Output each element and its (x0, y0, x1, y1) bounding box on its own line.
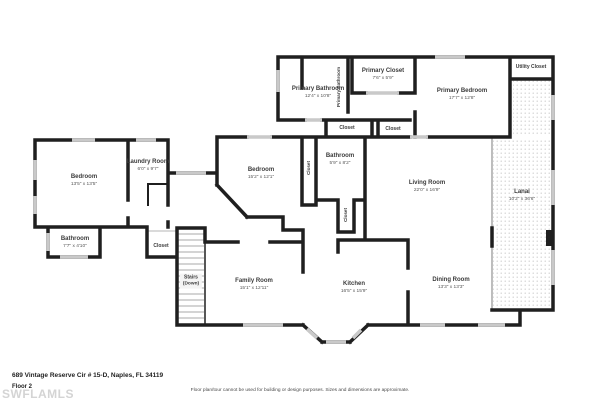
room-label-lanai: Lanai 10'2" x 36'6" (509, 189, 535, 203)
room-label-primary-closet: Primary Closet 7'6" x 5'9" (362, 68, 404, 82)
room-label-family-room: Family Room 15'1" x 12'11" (235, 278, 273, 292)
room-label-laundry-room: Laundry Room 6'0" x 9'7" (127, 159, 169, 173)
room-name: Closet (153, 243, 168, 250)
room-dims: 22'0" x 16'9" (409, 188, 445, 194)
room-label-living-room: Living Room 22'0" x 16'9" (409, 180, 445, 194)
room-name: Primary Bedroom (437, 88, 487, 96)
room-label-dining-room: Dining Room 13'3" x 13'3" (432, 277, 469, 291)
room-name: Closet (339, 125, 354, 132)
room-name: Family Room (235, 278, 273, 286)
room-dims: 7'7" x 4'10" (61, 244, 89, 250)
address-text: 689 Vintage Reserve Cir # 15-D, Naples, … (12, 372, 163, 379)
room-label-bedroom-left: Bedroom 13'5" x 13'5" (71, 174, 97, 188)
room-label-bathroom-left: Bathroom 7'7" x 4'10" (61, 236, 89, 250)
room-dims: 15'2" x 12'1" (248, 175, 274, 181)
room-label-closet-below-bath: Closet (343, 208, 349, 222)
room-label-kitchen: Kitchen 16'5" x 15'9" (341, 281, 367, 295)
room-dims: 7'6" x 5'9" (362, 76, 404, 82)
room-name: Dining Room (432, 277, 469, 285)
room-label-primary-bedroom: Primary Bedroom 17'7" x 12'8" (437, 88, 487, 102)
room-dims: 15'1" x 12'11" (235, 286, 273, 292)
stairs-direction: (Down) (183, 281, 199, 287)
lanai-texture (493, 138, 551, 308)
room-label-closet-stairs: Closet (153, 243, 168, 250)
room-dims: 6'0" x 9'7" (127, 167, 169, 173)
room-dims: 13'3" x 13'3" (432, 285, 469, 291)
room-name: Bedroom (71, 174, 97, 182)
room-name: Bedroom (248, 167, 274, 175)
room-name: Closet (306, 161, 312, 175)
room-dims: 5'9" x 8'2" (326, 161, 354, 167)
room-name: Closet (385, 126, 400, 133)
room-name: Closet (343, 208, 349, 222)
room-name: Lanai (509, 189, 535, 197)
utility-closet-texture (513, 80, 551, 136)
disclaimer-text: Floor plan/tour cannot be used for build… (191, 388, 410, 393)
room-label-utility-closet: Utility Closet (516, 64, 547, 71)
room-label-closet-bedroom: Closet (306, 161, 312, 175)
floor-plan-page: Primary Bathroom 12'4" x 10'8" Primary B… (0, 0, 600, 400)
room-dims: 10'2" x 36'6" (509, 197, 535, 203)
room-name: Bathroom (61, 236, 89, 244)
room-name: Laundry Room (127, 159, 169, 167)
room-name: Primary Bathroom (336, 67, 342, 107)
wall-column (546, 230, 553, 246)
room-name: Kitchen (341, 281, 367, 289)
room-label-stairs: Stairs (Down) (180, 274, 202, 289)
room-name: Stairs (183, 275, 199, 282)
room-name: Living Room (409, 180, 445, 188)
room-label-bedroom-center: Bedroom 15'2" x 12'1" (248, 167, 274, 181)
room-label-primary-bathroom-wc: Primary Bathroom (336, 67, 342, 107)
room-dims: 13'5" x 13'5" (71, 182, 97, 188)
room-label-closet-b: Closet (385, 126, 400, 133)
room-label-bathroom-center: Bathroom 5'9" x 8'2" (326, 153, 354, 167)
room-label-closet-a: Closet (339, 125, 354, 132)
watermark-logo: SWFLAMLS (2, 387, 74, 400)
room-name: Primary Closet (362, 68, 404, 76)
room-name: Bathroom (326, 153, 354, 161)
room-dims: 16'5" x 15'9" (341, 289, 367, 295)
room-dims: 17'7" x 12'8" (437, 96, 487, 102)
laundry-closet-walls (148, 184, 168, 205)
room-name: Utility Closet (516, 64, 547, 71)
